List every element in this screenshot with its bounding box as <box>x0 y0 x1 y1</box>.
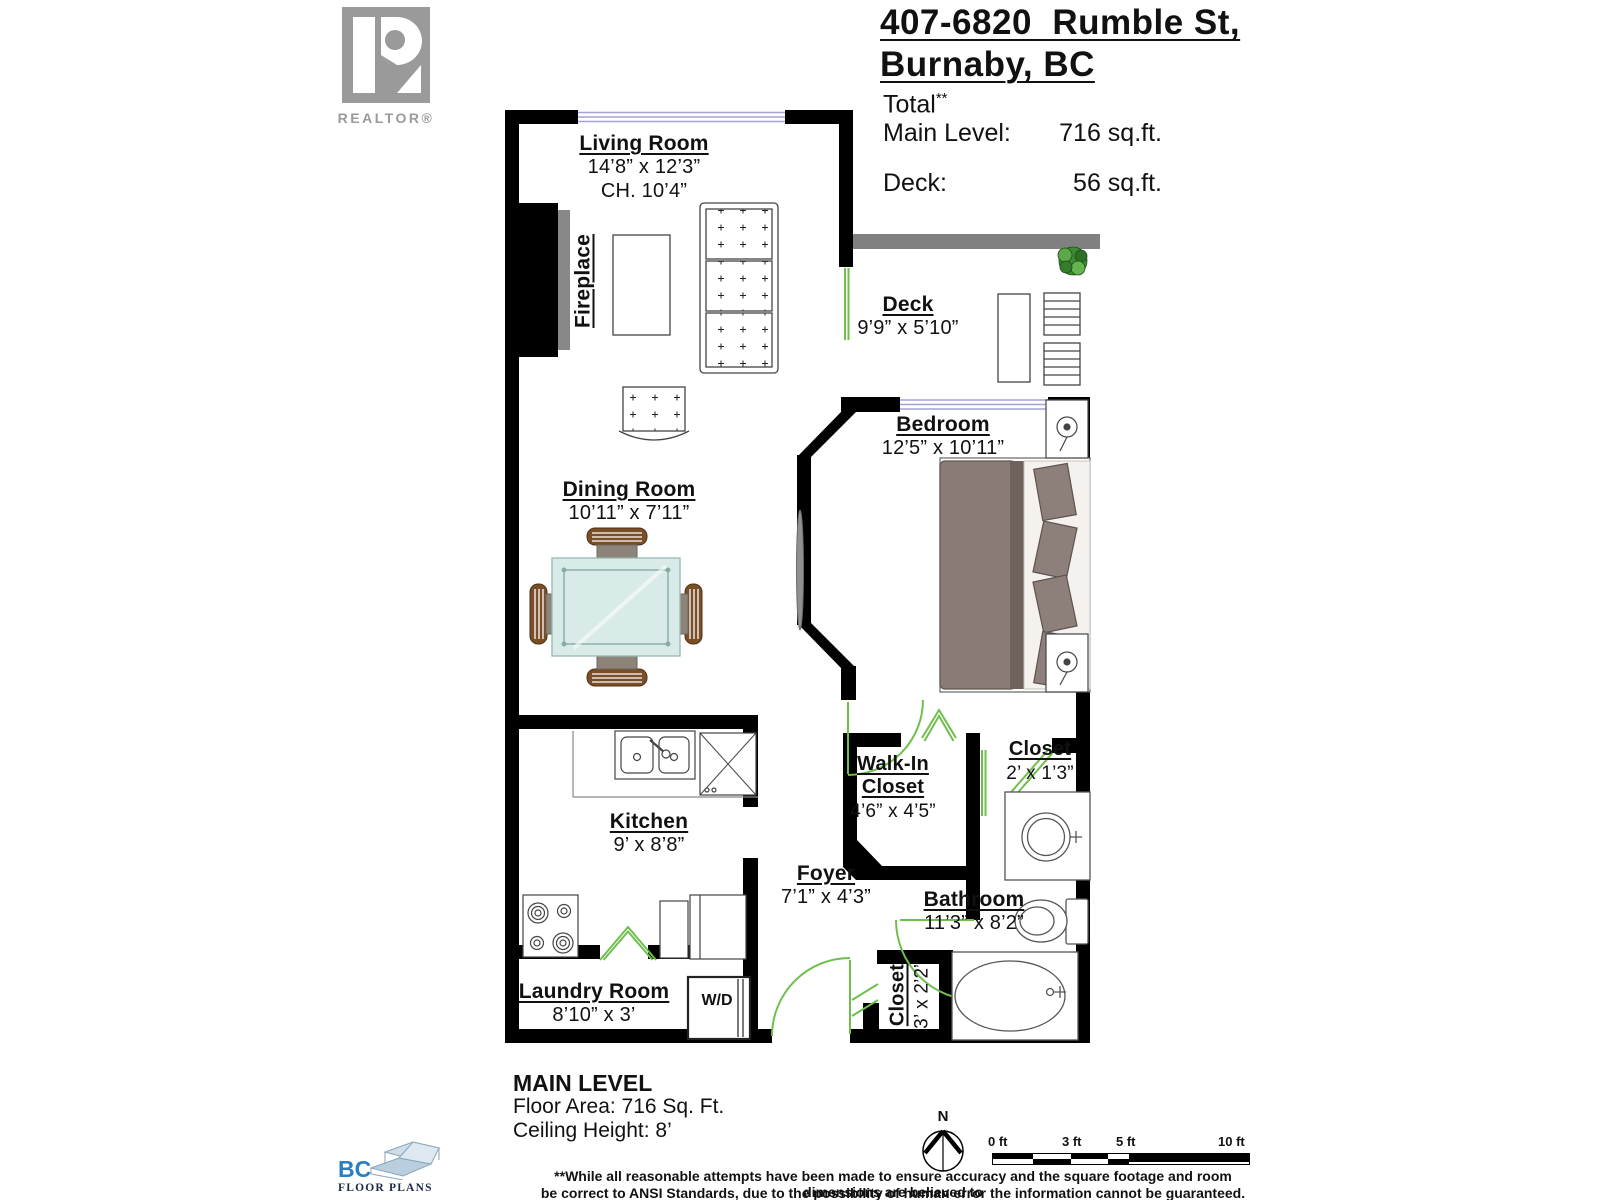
kitchen-bifold-door <box>600 927 656 960</box>
walkin-closet-name-line2: Closet <box>850 776 936 799</box>
scale-tick-10ft: 10 ft <box>1218 1134 1245 1149</box>
laundry-room-dims: 8’10” x 3’ <box>519 1004 670 1027</box>
scale-bar-graphic <box>992 1153 1250 1165</box>
realtor-r-icon <box>342 7 430 103</box>
floor-area-line: Floor Area: 716 Sq. Ft. <box>513 1095 724 1119</box>
bedroom-mirror <box>797 510 804 630</box>
kitchen-cabinet <box>660 901 688 958</box>
dining-room-dims: 10’11” x 7’11” <box>563 502 696 525</box>
armchair <box>619 387 689 440</box>
room-label-living-room: Living Room 14’8” x 12’3” CH. 10’4” <box>579 132 708 203</box>
room-label-kitchen: Kitchen 9’ x 8’8” <box>610 810 688 857</box>
closet-dims: 2’ x 1’3” <box>1006 762 1074 785</box>
room-label-bathroom: Bathroom 11’3” x 8’2” <box>924 888 1025 935</box>
bathroom-dims: 11’3” x 8’2” <box>924 912 1025 935</box>
washer-dryer-label: W/D <box>701 992 732 1010</box>
bedroom-window <box>900 397 1048 412</box>
scale-tick-0ft: 0 ft <box>988 1134 1008 1149</box>
walkin-closet-dims: 4’6” x 4’5” <box>850 800 936 823</box>
room-label-hall-closet: Closet 3’ x 2’2” <box>887 961 934 1029</box>
kitchen-name: Kitchen <box>610 810 688 833</box>
fireplace-hearth <box>558 210 570 350</box>
bedroom-dims: 12’5” x 10’11” <box>882 437 1005 460</box>
dining-set <box>530 528 702 686</box>
scale-bar: 0 ft 3 ft 5 ft 10 ft <box>992 1134 1250 1166</box>
disclaimer-line2: be correct to ANSI Standards, due to the… <box>535 1185 1251 1200</box>
living-room-name: Living Room <box>579 132 708 155</box>
room-label-foyer: Foyer 7’1” x 4’3” <box>781 862 871 909</box>
compass-north-label: N <box>933 1108 953 1125</box>
hall-closet-name: Closet <box>887 961 910 1029</box>
realtor-wordmark: REALTOR® <box>336 110 436 126</box>
deck-name: Deck <box>857 293 958 316</box>
bc-plan-sketch-icon <box>365 1138 443 1180</box>
deck-dims: 9’9” x 5’10” <box>857 317 958 340</box>
realtor-logo: REALTOR® <box>342 7 436 126</box>
level-title: MAIN LEVEL <box>513 1070 652 1097</box>
fireplace-text: Fireplace <box>572 234 595 328</box>
coffee-table <box>613 235 670 335</box>
bathroom-name: Bathroom <box>924 888 1025 911</box>
deck-furniture <box>998 293 1080 385</box>
living-room-dims: 14’8” x 12’3” <box>579 156 708 179</box>
hall-door <box>982 750 986 816</box>
entry-door <box>772 958 850 1036</box>
address-line2: Burnaby, BC <box>880 44 1095 85</box>
foyer-name: Foyer <box>781 862 871 885</box>
kitchen-dims: 9’ x 8’8” <box>610 834 688 857</box>
hall-closet-dims: 3’ x 2’2” <box>911 961 934 1029</box>
room-label-bedroom: Bedroom 12’5” x 10’11” <box>882 413 1005 460</box>
living-room-ceiling-height: CH. 10’4” <box>579 180 708 203</box>
deck-plant <box>1058 247 1087 275</box>
room-label-deck: Deck 9’9” x 5’10” <box>857 293 958 340</box>
room-label-laundry-room: Laundry Room 8’10” x 3’ <box>519 980 670 1027</box>
living-room-window <box>578 110 785 124</box>
sofa <box>700 203 778 373</box>
scale-tick-3ft: 3 ft <box>1062 1134 1082 1149</box>
ceiling-height-line: Ceiling Height: 8’ <box>513 1119 672 1143</box>
floorplan-page: REALTOR® 407-6820 Rumble St, Burnaby, BC… <box>0 0 1600 1200</box>
room-label-walkin-closet: Walk-In Closet 4’6” x 4’5” <box>850 753 936 823</box>
fireplace-label: Fireplace <box>572 234 595 328</box>
room-label-dining-room: Dining Room 10’11” x 7’11” <box>563 478 696 525</box>
deck-door <box>845 268 849 340</box>
bedroom-name: Bedroom <box>882 413 1005 436</box>
fridge <box>690 895 746 959</box>
compass-icon <box>921 1126 965 1174</box>
bc-logo-wordmark: FLOOR PLANS <box>338 1182 433 1194</box>
bc-logo-text: BC <box>338 1156 371 1183</box>
scale-tick-5ft: 5 ft <box>1116 1134 1136 1149</box>
walkin-bifold-door <box>922 710 956 741</box>
foyer-dims: 7’1” x 4’3” <box>781 886 871 909</box>
walkin-closet-name-line1: Walk-In <box>850 753 936 776</box>
closet-name: Closet <box>1006 738 1074 761</box>
address-line1: 407-6820 Rumble St, <box>880 2 1240 43</box>
room-label-closet: Closet 2’ x 1’3” <box>1006 738 1074 785</box>
dining-room-name: Dining Room <box>563 478 696 501</box>
laundry-room-name: Laundry Room <box>519 980 670 1003</box>
toilet-tank <box>1066 899 1088 944</box>
